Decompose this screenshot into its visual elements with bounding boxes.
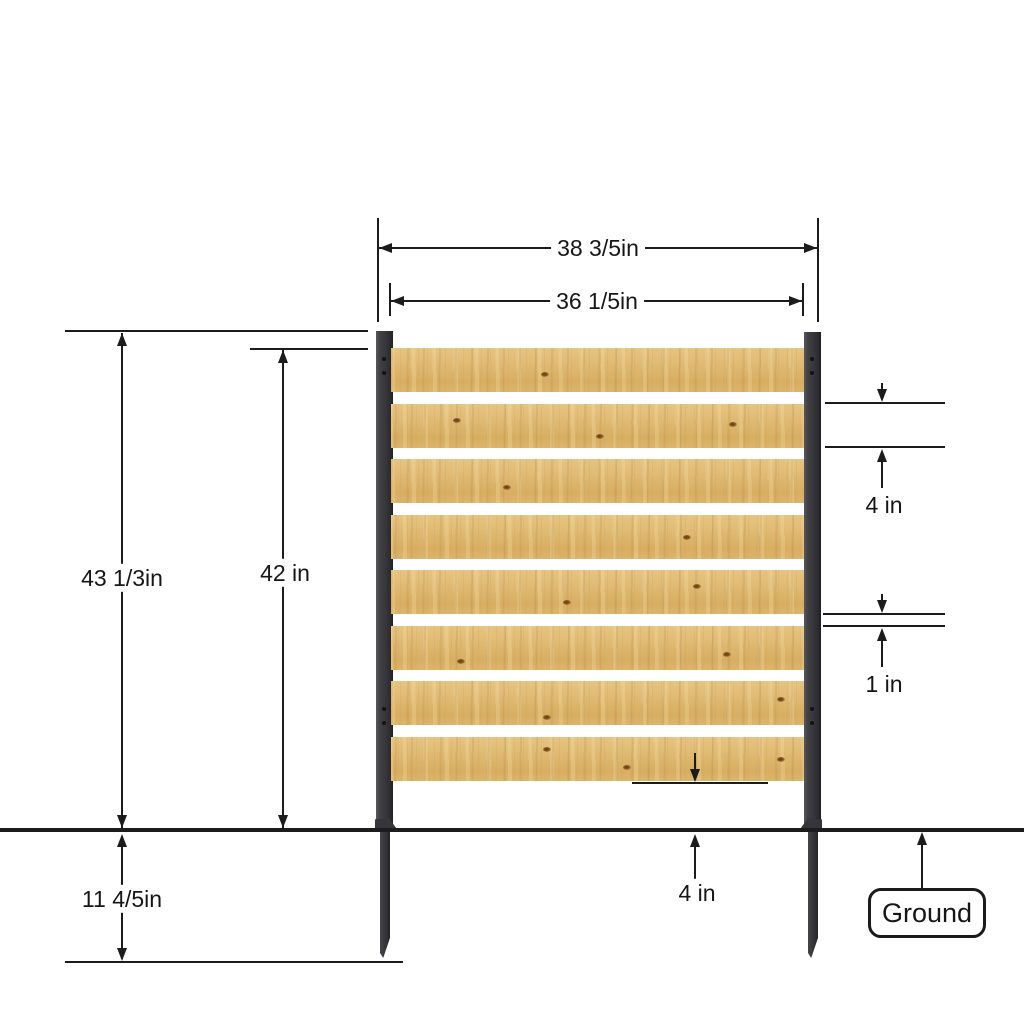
wood-knot	[683, 535, 691, 540]
slat-gap-line-bottom	[823, 625, 945, 627]
slat-gap-label: 1 in	[859, 670, 908, 698]
slat-height-label: 4 in	[859, 491, 908, 519]
ground-label: Ground	[882, 898, 972, 929]
arrow-up-icon	[117, 834, 127, 847]
wood-slat	[391, 737, 804, 781]
panel-height-dimension-line	[282, 350, 284, 828]
panel-height-extension-line	[250, 348, 368, 350]
wood-slat	[391, 348, 804, 392]
wood-knot	[541, 372, 549, 377]
wood-slat	[391, 570, 804, 614]
arrow-up-icon	[917, 832, 927, 845]
post-bottom-reference-line	[65, 961, 403, 963]
wood-knot	[729, 422, 737, 427]
arrow-down-icon	[278, 815, 288, 828]
outer-width-label: 38 3/5in	[551, 234, 645, 262]
wood-slat	[391, 404, 804, 448]
outer-width-extension-right	[817, 218, 819, 322]
arrow-up-icon	[117, 333, 127, 346]
slat-height-line-top	[825, 402, 945, 404]
outer-width-extension-left	[377, 218, 379, 322]
left-post-stake	[380, 832, 390, 958]
screw-icon	[382, 721, 386, 725]
wood-knot	[623, 765, 631, 770]
wood-knot	[777, 757, 785, 762]
inner-width-label: 36 1/5in	[550, 287, 644, 315]
slat-height-line-bottom	[825, 446, 945, 448]
ground-callout-box: Ground	[868, 888, 986, 938]
screw-icon	[810, 371, 814, 375]
slat-gap-line-top	[823, 613, 945, 615]
screw-icon	[810, 357, 814, 361]
arrow-down-icon	[117, 815, 127, 828]
arrow-right-icon	[789, 296, 802, 306]
wood-knot	[693, 584, 701, 589]
wood-knot	[563, 600, 571, 605]
ground-callout-arrow-line	[921, 841, 923, 888]
arrow-right-icon	[804, 243, 817, 253]
wood-slat	[391, 459, 804, 503]
wood-knot	[596, 434, 604, 439]
wood-knot	[457, 659, 465, 664]
arrow-up-icon	[877, 449, 887, 462]
bottom-clearance-label: 4 in	[672, 879, 721, 907]
wood-knot	[453, 418, 461, 423]
arrow-up-icon	[690, 834, 700, 847]
right-post	[804, 332, 821, 832]
underground-depth-label: 11 4/5in	[76, 885, 168, 913]
right-post-stake	[808, 832, 818, 958]
wood-knot	[543, 715, 551, 720]
screw-icon	[382, 707, 386, 711]
bottom-clearance-marker-line	[632, 782, 768, 784]
arrow-up-icon	[278, 350, 288, 363]
wood-knot	[503, 485, 511, 490]
wood-slat	[391, 681, 804, 725]
arrow-left-icon	[379, 243, 392, 253]
arrow-left-icon	[391, 296, 404, 306]
arrow-down-icon	[877, 600, 887, 613]
wood-knot	[723, 652, 731, 657]
overall-height-extension-line	[65, 330, 368, 332]
arrow-down-icon	[690, 769, 700, 782]
bottom-clearance-arrow-line-below	[694, 843, 696, 881]
screw-icon	[382, 357, 386, 361]
overall-height-label: 43 1/3in	[75, 564, 169, 592]
arrow-down-icon	[877, 389, 887, 402]
wood-knot	[543, 747, 551, 752]
wood-slat	[391, 626, 804, 670]
arrow-up-icon	[877, 628, 887, 641]
screw-icon	[810, 707, 814, 711]
screw-icon	[810, 721, 814, 725]
ground-line	[0, 828, 1024, 832]
wood-slat	[391, 515, 804, 559]
panel-height-label: 42 in	[254, 559, 316, 587]
wood-knot	[777, 697, 785, 702]
fence-dimension-diagram: 38 3/5in 36 1/5in 43 1/3in 42 in 4 in 1 …	[0, 0, 1024, 1024]
screw-icon	[382, 371, 386, 375]
arrow-down-icon	[117, 948, 127, 961]
